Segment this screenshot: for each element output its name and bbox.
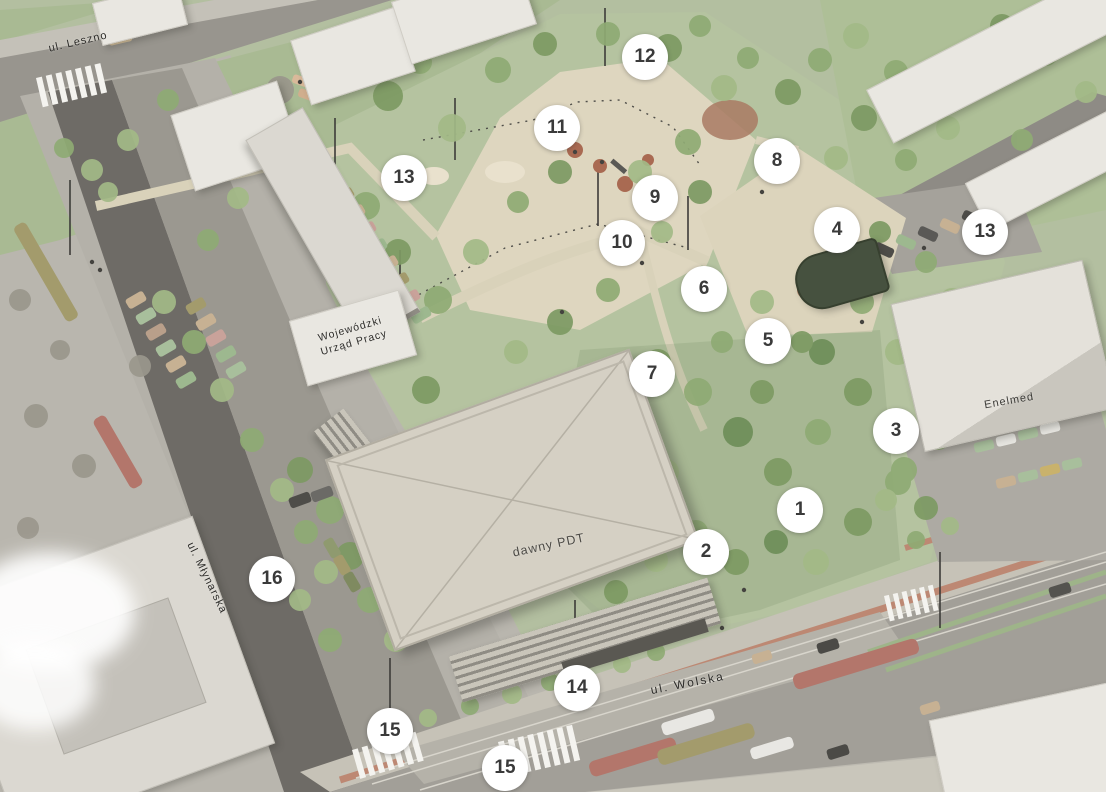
site-plan-rendering: ul. Leszno ul. Młynarska ul. Wolska Woje… [0,0,1106,792]
